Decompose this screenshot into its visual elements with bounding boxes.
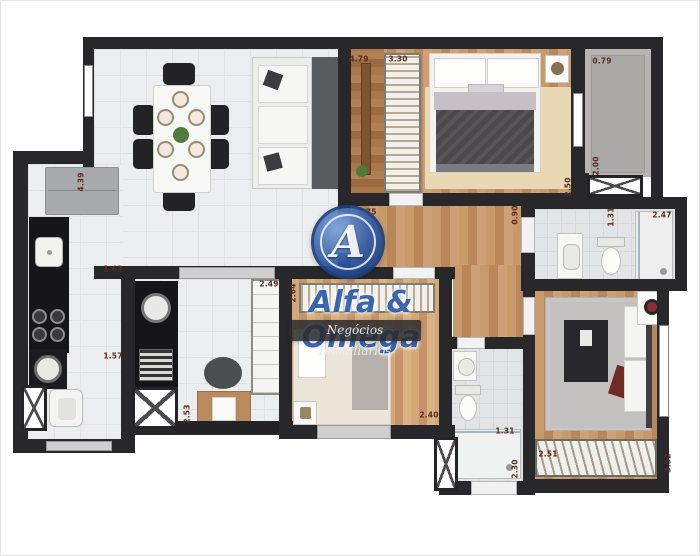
toilet-tank — [455, 385, 481, 395]
shower-drain — [660, 268, 667, 275]
nightstand — [293, 401, 317, 425]
vent-shaft-window — [21, 385, 47, 431]
dark-throw — [564, 320, 608, 382]
sofa-cushion — [258, 106, 308, 144]
door-master-bedroom — [523, 297, 535, 335]
vent-shaft-window — [132, 387, 178, 429]
shower-glass — [638, 212, 640, 286]
toilet-bowl — [459, 395, 477, 421]
master-closet — [535, 439, 657, 477]
table-plant — [173, 127, 189, 143]
watermark-logo: A — [311, 205, 385, 279]
floor-plan: 4.391.631.572.532.492.644.793.300.792.00… — [0, 0, 700, 556]
toilet-bowl — [601, 247, 621, 275]
shower-stall — [635, 211, 673, 287]
master-bed — [545, 297, 651, 431]
shower-stall — [453, 429, 521, 479]
sliding-door-laundry — [46, 441, 112, 451]
toilet-tank — [597, 237, 625, 247]
sofa — [252, 57, 312, 189]
plate — [157, 141, 174, 158]
bedroom1-wardrobe — [384, 53, 421, 193]
throw-motif — [580, 330, 592, 346]
pillow — [624, 360, 648, 412]
double-bed — [429, 53, 541, 173]
wall — [523, 479, 669, 493]
office-sideboard — [175, 421, 279, 433]
wall — [651, 37, 663, 197]
plate — [172, 91, 189, 108]
dining-chair — [133, 105, 155, 135]
wall — [675, 197, 687, 291]
dining-chair — [133, 139, 155, 169]
cabinet-bowl — [141, 293, 171, 323]
wall — [83, 37, 663, 49]
terrace-door-window — [573, 93, 583, 147]
cabinet-grill — [139, 349, 173, 381]
plate — [188, 141, 205, 158]
door-bedroom2 — [393, 267, 435, 279]
side-bench — [361, 63, 371, 175]
washer-drum — [34, 355, 62, 383]
bed-quilt — [436, 110, 534, 166]
plate — [157, 109, 174, 126]
window — [659, 325, 669, 417]
bathroom1-vanity — [557, 233, 583, 279]
decor-item — [300, 407, 311, 419]
laundry-tank — [49, 389, 83, 427]
cooktop-burner — [50, 309, 65, 324]
logo-letter: A — [314, 208, 382, 276]
wash-basin — [458, 358, 475, 376]
sink-drain — [47, 250, 52, 255]
cooktop-burner — [32, 327, 47, 342]
tank-basin — [58, 398, 76, 420]
vent-shaft-window — [434, 437, 458, 491]
door-bedroom1 — [389, 193, 423, 206]
door-bathroom1 — [521, 217, 535, 253]
refrigerator-door-line — [48, 190, 116, 191]
bed-sheet-band — [434, 92, 536, 110]
shower-drain — [506, 464, 513, 471]
floor-plant — [356, 165, 368, 177]
door-bathroom2-bottom — [471, 481, 517, 495]
wall — [521, 197, 687, 209]
desk-paper — [212, 397, 236, 421]
bed-foot-throw — [436, 164, 534, 172]
decor-item — [551, 62, 564, 75]
dining-chair — [163, 63, 195, 85]
vent-shaft-window — [587, 175, 643, 197]
kitchen-sink — [35, 237, 63, 267]
bathroom2-vanity — [453, 351, 477, 381]
cooktop-burner — [32, 309, 47, 324]
office-desk — [197, 391, 251, 423]
washing-machine — [29, 349, 67, 389]
window — [84, 65, 93, 117]
sliding-door-office — [179, 267, 275, 279]
wash-basin — [563, 244, 580, 270]
watermark-tagline: Negócios Imobiliários — [289, 320, 421, 341]
office-cabinet — [134, 281, 178, 387]
shower-glass — [454, 431, 520, 433]
office-chair — [204, 357, 242, 389]
plate — [188, 109, 205, 126]
balcony-door-bedroom2 — [317, 425, 391, 439]
plate — [172, 164, 189, 181]
terrace-mat — [591, 55, 645, 173]
nightstand — [545, 55, 569, 83]
cooktop-burner — [50, 327, 65, 342]
refrigerator — [45, 167, 119, 215]
